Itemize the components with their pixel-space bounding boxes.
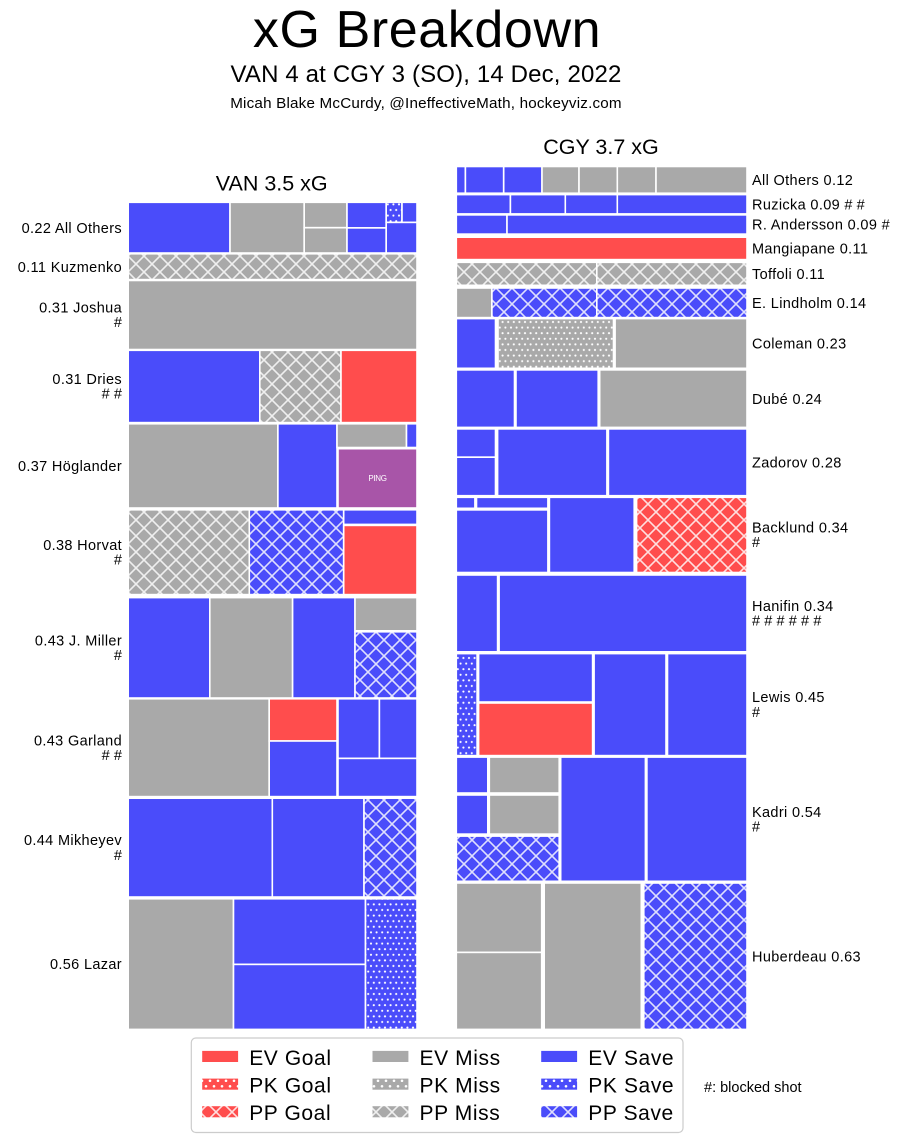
svg-text:##: ## [102,748,127,764]
svg-text:CGY 3.7 xG: CGY 3.7 xG [543,135,659,159]
svg-text:Hanifin 0.34: Hanifin 0.34 [752,599,834,615]
svg-text:#: # [114,848,126,864]
svg-text:#: # [114,552,126,568]
svg-text:PK Miss: PK Miss [420,1075,501,1098]
svg-text:Kadri 0.54: Kadri 0.54 [752,805,822,821]
svg-text:#: # [752,705,764,721]
svg-text:EV Goal: EV Goal [249,1047,331,1070]
svg-text:0.31 Dries: 0.31 Dries [52,372,122,388]
svg-text:Huberdeau 0.63: Huberdeau 0.63 [752,949,861,965]
svg-text:#: # [752,535,764,551]
svg-text:#: blocked shot: #: blocked shot [704,1080,802,1096]
svg-text:0.44 Mikheyev: 0.44 Mikheyev [24,833,122,849]
svg-text:Lewis 0.45: Lewis 0.45 [752,690,825,706]
svg-text:PING: PING [368,474,386,483]
svg-text:EV Save: EV Save [588,1047,674,1070]
svg-text:#: # [114,315,126,331]
svg-text:0.56 Lazar: 0.56 Lazar [50,957,122,973]
svg-text:R. Andersson 0.09 #: R. Andersson 0.09 # [752,218,894,234]
svg-text:Toffoli 0.11: Toffoli 0.11 [752,267,825,283]
svg-text:0.22 All Others: 0.22 All Others [22,221,122,237]
svg-text:Backlund 0.34: Backlund 0.34 [752,521,848,537]
svg-text:xG Breakdown: xG Breakdown [253,1,601,59]
svg-text:VAN 4 at CGY 3 (SO), 14 Dec, 2: VAN 4 at CGY 3 (SO), 14 Dec, 2022 [231,61,622,88]
svg-text:PP Miss: PP Miss [420,1102,501,1125]
svg-text:PP Save: PP Save [588,1102,674,1125]
svg-text:#: # [114,648,126,664]
svg-text:0.11 Kuzmenko: 0.11 Kuzmenko [18,260,122,276]
svg-text:Ruzicka 0.09 ##: Ruzicka 0.09 ## [752,197,869,213]
svg-text:0.37 Höglander: 0.37 Höglander [18,459,122,475]
svg-text:0.43 J. Miller: 0.43 J. Miller [35,633,122,649]
svg-text:Dubé 0.24: Dubé 0.24 [752,392,822,408]
svg-text:All Others 0.12: All Others 0.12 [752,173,853,189]
svg-text:PP Goal: PP Goal [249,1102,331,1125]
svg-text:PK Goal: PK Goal [249,1075,331,1098]
svg-text:VAN 3.5 xG: VAN 3.5 xG [216,172,328,196]
svg-text:Coleman 0.23: Coleman 0.23 [752,337,846,353]
svg-text:#: # [752,819,764,835]
svg-text:PK Save: PK Save [588,1075,674,1098]
svg-text:Mangiapane 0.11: Mangiapane 0.11 [752,242,868,258]
svg-text:Micah Blake McCurdy, @Ineffect: Micah Blake McCurdy, @IneffectiveMath, h… [230,95,622,112]
svg-text:E. Lindholm 0.14: E. Lindholm 0.14 [752,296,866,312]
svg-text:Zadorov 0.28: Zadorov 0.28 [752,455,842,471]
svg-text:##: ## [102,387,127,403]
svg-text:EV Miss: EV Miss [420,1047,501,1070]
svg-text:######: ###### [752,614,826,630]
svg-text:0.38 Horvat: 0.38 Horvat [43,538,122,554]
svg-text:0.43 Garland: 0.43 Garland [34,733,122,749]
svg-text:0.31 Joshua: 0.31 Joshua [39,301,122,317]
